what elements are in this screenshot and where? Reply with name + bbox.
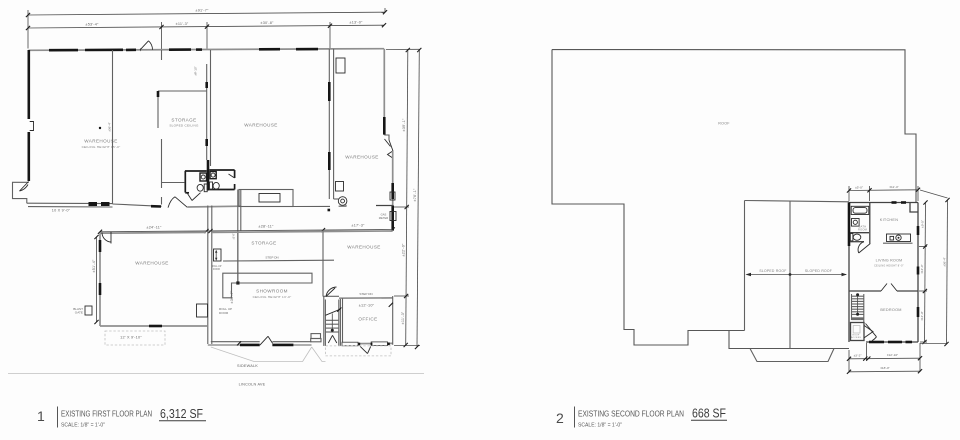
svg-text:CEILING HEIGHT 8'-0": CEILING HEIGHT 8'-0" [874, 265, 904, 268]
svg-text:WAREHOUSE: WAREHOUSE [244, 123, 278, 128]
svg-text:SLOPED ROOF: SLOPED ROOF [805, 269, 832, 273]
svg-text:CEILING HEIGHT 13'-0": CEILING HEIGHT 13'-0" [253, 295, 292, 299]
svg-text:SHOWROOM: SHOWROOM [256, 289, 288, 294]
svg-text:±11'-4": ±11'-4" [889, 185, 898, 189]
svg-text:GATE: GATE [75, 311, 83, 315]
svg-text:10 X 9'-0": 10 X 9'-0" [52, 209, 71, 213]
svg-text:2: 2 [556, 410, 564, 426]
svg-text:BEDROOM: BEDROOM [880, 308, 901, 312]
svg-text:12' X 9'-10": 12' X 9'-10" [120, 336, 142, 340]
svg-text:±3'-2": ±3'-2" [854, 354, 862, 358]
svg-text:SLOPED CEILING: SLOPED CEILING [169, 124, 199, 128]
svg-text:±28'-11": ±28'-11" [258, 224, 274, 228]
svg-text:±18'-0": ±18'-0" [880, 366, 890, 370]
svg-text:SCALE: 1/8" = 1'-0": SCALE: 1/8" = 1'-0" [61, 423, 105, 429]
svg-text:GAS: GAS [381, 212, 387, 216]
svg-text:EXISTING SECOND FLOOR PLAN: EXISTING SECOND FLOOR PLAN [578, 409, 684, 419]
svg-text:±17'-3": ±17'-3" [351, 224, 365, 228]
svg-text:SIDEWALK: SIDEWALK [237, 364, 258, 368]
svg-text:ROOF: ROOF [852, 334, 859, 336]
svg-text:1: 1 [37, 408, 45, 424]
svg-text:ACCESS: ACCESS [851, 336, 861, 339]
svg-text:STORAGE: STORAGE [251, 241, 276, 246]
svg-text:±13'-0": ±13'-0" [349, 20, 363, 24]
svg-text:DOOR: DOOR [213, 269, 220, 271]
svg-text:±5'-0": ±5'-0" [855, 185, 863, 189]
svg-text:±30'-8": ±30'-8" [260, 21, 274, 25]
svg-text:±12'-9": ±12'-9" [920, 311, 924, 321]
svg-text:EXISTING FIRST FLOOR PLAN: EXISTING FIRST FLOOR PLAN [61, 409, 152, 419]
svg-text:SCALE: 1/8" = 1'-0": SCALE: 1/8" = 1'-0" [578, 423, 622, 429]
svg-text:±12'-10": ±12'-10" [359, 304, 375, 308]
svg-text:±3'-6": ±3'-6" [232, 233, 235, 239]
svg-text:±12'-10": ±12'-10" [887, 353, 898, 357]
svg-text:6,312 SF: 6,312 SF [160, 407, 203, 421]
svg-text:±9'-5": ±9'-5" [921, 220, 925, 228]
svg-text:±76'-1": ±76'-1" [413, 188, 417, 202]
svg-text:±91'-7": ±91'-7" [195, 9, 209, 13]
svg-text:±12'-0": ±12'-0" [920, 264, 924, 274]
svg-text:ROLL UP: ROLL UP [212, 266, 222, 268]
svg-text:STEP DN: STEP DN [265, 256, 278, 260]
svg-text:KITCHEN: KITCHEN [880, 218, 898, 222]
svg-text:±53'-4": ±53'-4" [85, 23, 99, 27]
svg-text:±8'-10": ±8'-10" [194, 66, 198, 76]
svg-text:STORAGE: STORAGE [171, 118, 196, 123]
svg-text:DOOR: DOOR [219, 311, 229, 315]
svg-text:OFFICE: OFFICE [358, 317, 377, 322]
svg-text:±30'-7": ±30'-7" [230, 290, 234, 304]
svg-text:STEP DN: STEP DN [359, 292, 372, 296]
svg-text:±36'-4": ±36'-4" [942, 257, 946, 267]
svg-text:WAREHOUSE: WAREHOUSE [347, 245, 381, 250]
svg-text:WAREHOUSE: WAREHOUSE [135, 261, 169, 266]
svg-text:±24'-11": ±24'-11" [146, 225, 162, 229]
svg-text:±36'-4": ±36'-4" [108, 122, 112, 132]
svg-text:668 SF: 668 SF [692, 407, 726, 421]
svg-text:CEILING HEIGHT 15'-0": CEILING HEIGHT 15'-0" [82, 145, 121, 149]
svg-text:±39'-1": ±39'-1" [402, 118, 406, 132]
svg-text:±51'-4": ±51'-4" [92, 259, 96, 273]
svg-text:METER: METER [379, 216, 388, 220]
svg-text:ROOF: ROOF [718, 122, 730, 126]
svg-text:ROOM: ROOM [858, 228, 867, 232]
svg-text:±22'-0": ±22'-0" [401, 243, 405, 257]
svg-text:±11'-3": ±11'-3" [401, 311, 405, 324]
svg-text:±11'-3": ±11'-3" [176, 22, 189, 26]
svg-text:WAREHOUSE: WAREHOUSE [345, 155, 379, 160]
svg-text:SLOPED ROOF: SLOPED ROOF [759, 269, 786, 273]
svg-text:LIVING ROOM: LIVING ROOM [876, 259, 903, 263]
svg-text:LINCOLN AVE: LINCOLN AVE [239, 383, 266, 387]
